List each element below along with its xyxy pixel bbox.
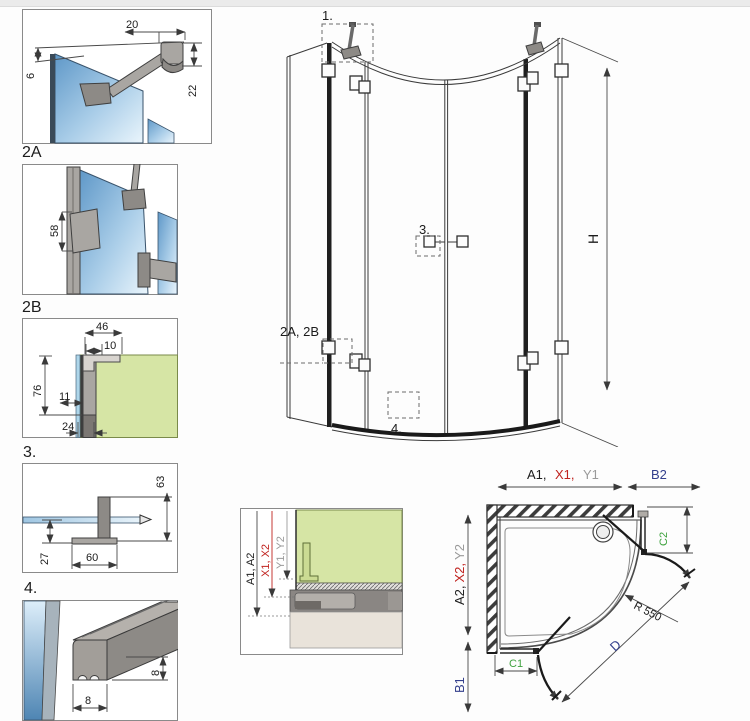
plan-c2-label: C2 — [658, 532, 670, 546]
detail-2b-wall-section-drawing: 46 10 76 11 24 — [22, 318, 178, 438]
dim-27-label: 27 — [39, 553, 51, 565]
dim-6-label: 6 — [25, 73, 37, 79]
d-dimension: D — [562, 582, 689, 702]
dim-63-label: 63 — [155, 476, 167, 488]
right-door — [603, 515, 695, 578]
plan-a2x2y2-label: A2,X2,Y2 — [455, 544, 467, 605]
dim-22-label: 22 — [187, 85, 199, 97]
c1-dimension: C1 — [495, 655, 537, 676]
section-a-label: A1, A2 — [245, 553, 257, 585]
detail-3-label: 3. — [23, 444, 36, 462]
svg-text:2A, 2B: 2A, 2B — [280, 324, 319, 339]
bottom-door — [537, 617, 570, 700]
plan-y2-label: Y2 — [455, 544, 467, 560]
door-swing-arc — [538, 655, 558, 699]
plan-b1-label: B1 — [455, 677, 467, 693]
plan-y1-label: Y1 — [583, 467, 599, 482]
wall-section-detail-drawing: A1, A2 X1, X2 Y1, Y2 — [238, 505, 406, 657]
dim-46-label: 46 — [96, 321, 108, 333]
detail-3-handle-drawing: 63 27 60 — [22, 463, 178, 573]
plan-x2-label: X2, — [455, 563, 467, 583]
plan-d-label: D — [607, 637, 624, 654]
plan-a1-label: A1, — [527, 467, 547, 482]
plan-x1-label: X1, — [555, 467, 575, 482]
plan-view-drawing: A1, X1, Y1 B2 A2,X2,Y2 B1 — [455, 450, 750, 721]
dim-60-label: 60 — [86, 552, 98, 564]
seal-strip — [296, 583, 402, 590]
support-arm-right — [526, 22, 544, 55]
height-dimension: H — [562, 38, 618, 447]
callout-2ab: 2A, 2B — [280, 324, 352, 363]
right-side-panel — [558, 38, 562, 423]
detail-4-label: 4. — [24, 580, 37, 598]
floor-profile-layers — [290, 590, 402, 648]
left-fixed-profile — [327, 43, 332, 427]
door-handles — [424, 236, 468, 247]
detail-1-support-arm-drawing: 20 6 22 — [22, 9, 212, 144]
svg-text:4.: 4. — [391, 421, 402, 436]
center-door-edges — [445, 80, 448, 434]
drain-inner — [597, 526, 610, 539]
callout-4: 4. — [388, 392, 419, 436]
svg-text:3.: 3. — [419, 222, 430, 237]
left-door-edge — [365, 62, 368, 431]
dim-8-width-label: 8 — [85, 695, 91, 707]
wall-fill — [296, 510, 402, 583]
support-arm-left — [341, 22, 361, 59]
section-x-label: X1, X2 — [260, 544, 272, 577]
dim-58-label: 58 — [49, 225, 61, 237]
detail-4-seal-drawing: 8 8 — [22, 600, 178, 721]
walls — [487, 505, 648, 653]
plan-a2-label: A2, — [455, 585, 467, 605]
plan-radius-label: R 550 — [632, 600, 664, 624]
detail-2a-wall-profile-drawing: 58 — [22, 164, 178, 295]
plan-b2-label: B2 — [651, 467, 667, 482]
plan-c1-label: C1 — [509, 658, 523, 670]
svg-text:1.: 1. — [322, 8, 333, 23]
shower-tray — [497, 517, 641, 649]
dim-h-label: H — [585, 234, 601, 244]
left-side-panel — [287, 43, 332, 427]
detail-2a-label: 2A — [22, 144, 42, 162]
top-width-dimension: A1, X1, Y1 B2 — [498, 467, 700, 487]
dim-11-label: 11 — [59, 391, 70, 403]
left-width-dimension: A2,X2,Y2 B1 — [455, 515, 468, 712]
dim-10-label: 10 — [104, 340, 116, 352]
door-swing-arc — [645, 554, 690, 578]
dim-20-label: 20 — [126, 19, 138, 31]
right-door-profile — [524, 59, 529, 428]
installation-diagram-page: 20 6 22 2A 58 2B — [0, 0, 750, 721]
section-y-label: Y1, Y2 — [275, 536, 287, 569]
detail-2b-label: 2B — [22, 299, 42, 317]
dim-24-label: 24 — [62, 421, 74, 433]
mounting-plate — [70, 209, 100, 253]
dim-8-height-label: 8 — [150, 670, 162, 676]
c2-dimension: C2 — [647, 507, 693, 553]
dim-76-label: 76 — [32, 385, 44, 397]
main-enclosure-drawing: H 1. 3. 2A, 2B — [278, 5, 623, 447]
glass-panel — [24, 601, 60, 720]
